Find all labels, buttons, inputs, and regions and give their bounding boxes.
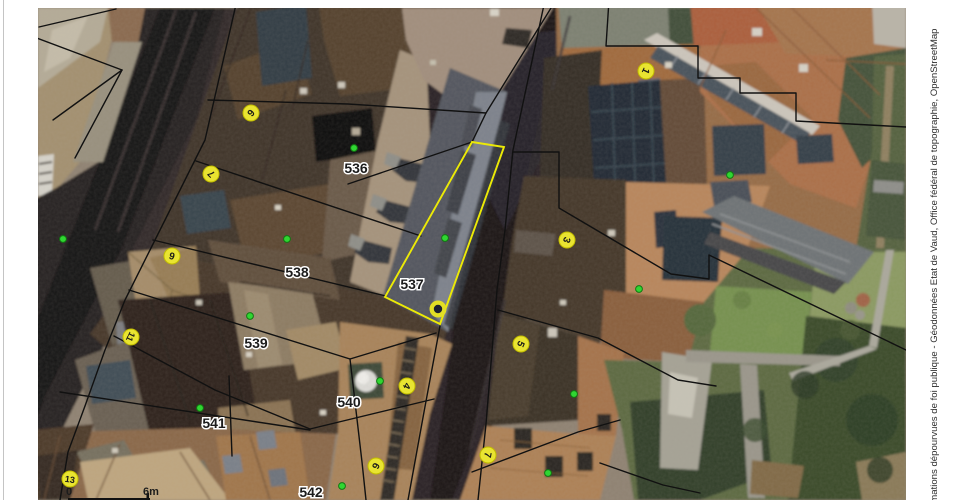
svg-text:542: 542 xyxy=(299,484,323,500)
svg-text:Informations dépourvues de foi: Informations dépourvues de foi publique … xyxy=(929,28,940,500)
svg-text:536: 536 xyxy=(344,160,368,176)
svg-text:6m: 6m xyxy=(143,486,159,498)
svg-text:541: 541 xyxy=(202,415,226,431)
svg-text:538: 538 xyxy=(285,264,309,280)
svg-text:13: 13 xyxy=(64,474,75,485)
svg-text:537: 537 xyxy=(400,276,424,292)
svg-text:0: 0 xyxy=(66,486,72,498)
svg-text:540: 540 xyxy=(337,394,361,410)
svg-text:539: 539 xyxy=(244,335,268,351)
